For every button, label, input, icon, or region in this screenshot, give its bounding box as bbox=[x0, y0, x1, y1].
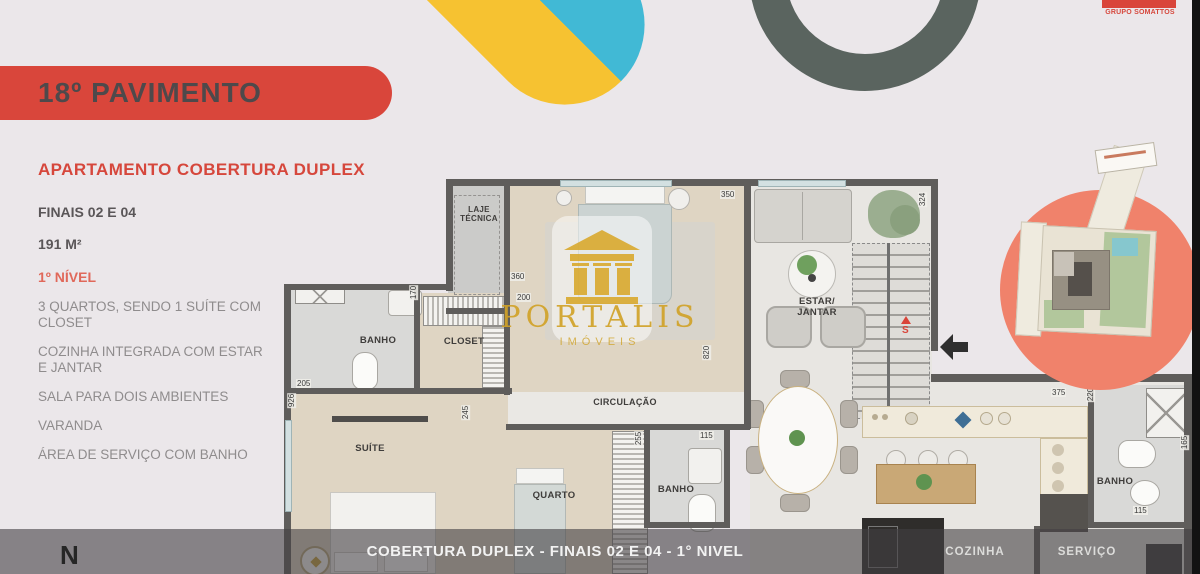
dim-375: 375 bbox=[1051, 388, 1066, 397]
label-estar-jantar: ESTAR/ JANTAR bbox=[786, 296, 848, 318]
floor-banner-title: 18º PAVIMENTO bbox=[0, 66, 392, 120]
label-banho-suite: BANHO bbox=[348, 335, 408, 346]
dim-115: 115 bbox=[699, 431, 714, 440]
stairs-up-label: S bbox=[902, 325, 909, 336]
wall bbox=[446, 179, 938, 186]
floor-banner: 18º PAVIMENTO bbox=[0, 66, 392, 120]
wall bbox=[1088, 382, 1094, 528]
dim-115b: 115 bbox=[1133, 506, 1148, 515]
slide: 18º PAVIMENTO GRUPO SOMATTOS APARTAMENTO… bbox=[0, 0, 1200, 574]
site-building-unit-light bbox=[1054, 252, 1074, 276]
wall bbox=[744, 179, 751, 429]
dim-205: 205 bbox=[296, 379, 311, 388]
sink bbox=[688, 448, 722, 484]
deco-ring bbox=[749, 0, 981, 91]
kettle bbox=[905, 412, 918, 425]
dim-820: 820 bbox=[702, 345, 711, 360]
label-banho-servico: BANHO bbox=[1085, 476, 1145, 487]
watermark-brand: PORTALIS bbox=[500, 300, 700, 335]
nightstand bbox=[556, 190, 572, 206]
feature-item: COZINHA INTEGRADA COM ESTAR E JANTAR bbox=[38, 344, 273, 376]
dim-926: 926 bbox=[287, 393, 296, 408]
sofa bbox=[754, 189, 852, 243]
label-laje-tecnica: LAJE TÉCNICA bbox=[450, 205, 508, 223]
stairs-rail bbox=[887, 243, 890, 419]
feature-item: ÁREA DE SERVIÇO COM BANHO bbox=[38, 447, 273, 463]
label-servico: SERVIÇO bbox=[1042, 546, 1132, 558]
sink-bowl bbox=[980, 412, 993, 425]
plant bbox=[797, 255, 817, 275]
feature-item: SALA PARA DOIS AMBIENTES bbox=[38, 389, 273, 405]
dim-255: 255 bbox=[634, 431, 643, 446]
feature-list: 3 QUARTOS, SENDO 1 SUÍTE COM CLOSET COZI… bbox=[38, 299, 273, 476]
window bbox=[285, 420, 292, 512]
burner bbox=[1052, 462, 1064, 474]
dining-chair bbox=[840, 400, 858, 428]
sofa-cushion-line bbox=[802, 192, 803, 240]
label-suite: SUÍTE bbox=[330, 443, 410, 454]
label-banho-meio: BANHO bbox=[646, 484, 706, 495]
label-cozinha: COZINHA bbox=[930, 546, 1020, 558]
north-compass-label: N bbox=[60, 540, 79, 571]
toilet bbox=[1118, 440, 1156, 468]
feature-item: 3 QUARTOS, SENDO 1 SUÍTE COM CLOSET bbox=[38, 299, 273, 331]
plant bbox=[916, 474, 932, 490]
shelf bbox=[332, 416, 428, 422]
counter-knob bbox=[882, 414, 888, 420]
finais-label: FINAIS 02 E 04 bbox=[38, 204, 136, 220]
wall bbox=[284, 284, 452, 290]
counter-knob bbox=[872, 414, 878, 420]
wall bbox=[1088, 522, 1192, 528]
burner bbox=[1052, 444, 1064, 456]
wall bbox=[446, 179, 453, 291]
dim-245: 245 bbox=[461, 405, 470, 420]
entry-arrow-icon bbox=[940, 334, 968, 360]
dim-324: 324 bbox=[918, 192, 927, 207]
right-black-strip bbox=[1192, 0, 1200, 574]
shower bbox=[1146, 388, 1186, 438]
wall bbox=[931, 179, 938, 351]
dim-360: 360 bbox=[510, 272, 525, 281]
portalis-temple-icon bbox=[562, 228, 642, 304]
window bbox=[758, 180, 846, 187]
stairs-up-triangle bbox=[901, 316, 911, 324]
area-label: 191 M² bbox=[38, 236, 82, 252]
burner bbox=[1052, 480, 1064, 492]
sink-bowl bbox=[998, 412, 1011, 425]
label-closet: CLOSET bbox=[420, 336, 508, 347]
plant bbox=[890, 205, 920, 235]
wall bbox=[506, 424, 750, 430]
dim-170: 170 bbox=[409, 285, 418, 300]
brand-logo-block bbox=[1102, 0, 1176, 8]
nightstand bbox=[668, 188, 690, 210]
bed-pillows bbox=[585, 186, 665, 204]
toilet bbox=[352, 352, 378, 390]
feature-item: VARANDA bbox=[38, 418, 273, 434]
decor-item bbox=[808, 274, 816, 282]
wall bbox=[724, 428, 730, 528]
site-pool bbox=[1112, 238, 1138, 256]
label-circulacao: CIRCULAÇÃO bbox=[580, 397, 670, 407]
kitchen-counter bbox=[862, 406, 1088, 438]
level-label: 1º NÍVEL bbox=[38, 269, 96, 285]
window bbox=[560, 180, 672, 187]
plant bbox=[789, 430, 805, 446]
label-quarto: QUARTO bbox=[514, 490, 594, 501]
wall bbox=[644, 428, 650, 528]
bed-pillows bbox=[516, 468, 564, 484]
wall bbox=[284, 388, 512, 394]
dim-350: 350 bbox=[720, 190, 735, 199]
shower bbox=[295, 289, 345, 304]
brand-name: GRUPO SOMATTOS bbox=[1098, 9, 1182, 16]
dim-165: 165 bbox=[1180, 435, 1189, 450]
dining-chair bbox=[840, 446, 858, 474]
wall bbox=[648, 522, 730, 528]
apartment-title: APARTAMENTO COBERTURA DUPLEX bbox=[38, 160, 438, 180]
counter-dark-top bbox=[1040, 494, 1088, 532]
dining-chair bbox=[780, 494, 810, 512]
watermark-subtitle: IMÓVEIS bbox=[500, 336, 700, 348]
